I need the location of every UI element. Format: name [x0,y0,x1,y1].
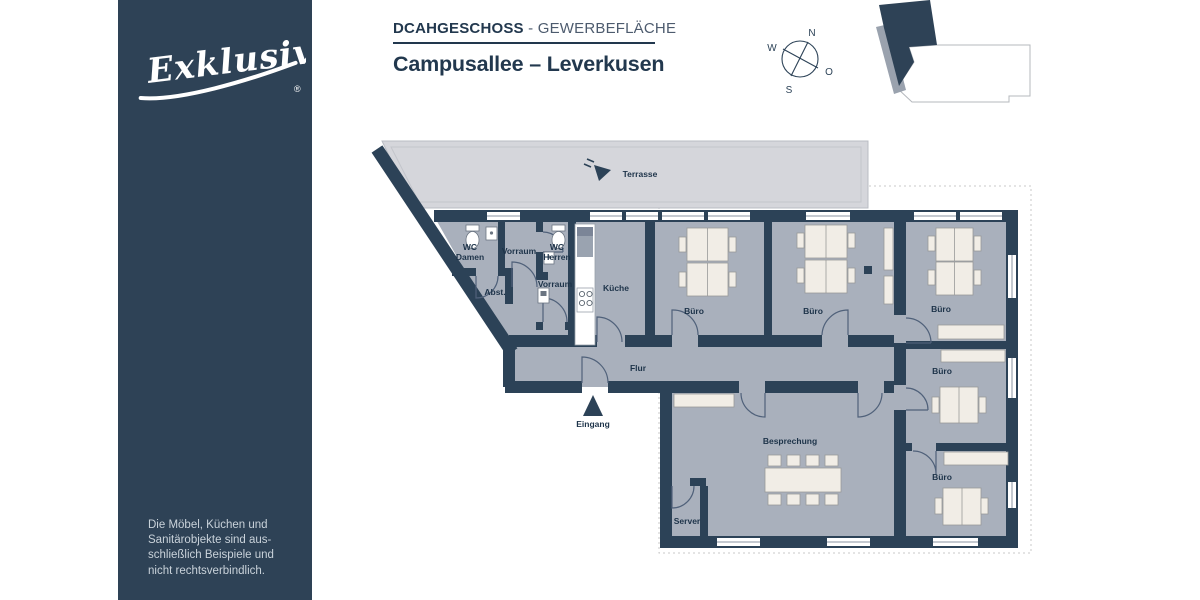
window [590,212,622,220]
sink-icon-damen [486,227,497,240]
terrace-label: Terrasse [623,169,658,179]
terrace: Terrasse [382,141,868,208]
kueche-label: Küche [603,283,629,293]
buero-2-label: Büro [803,306,823,316]
window [1008,482,1016,508]
window [717,538,760,546]
server-label: Server [674,516,701,526]
window [933,538,978,546]
window [662,212,704,220]
compass-ns-axis [791,42,808,76]
compass-east: O [825,67,833,78]
sideboard [674,394,734,407]
window [914,212,956,220]
vorraum-1-label: Vorraum [502,246,537,256]
compass-west: W [767,43,777,54]
buero-4-label: Büro [932,366,952,376]
wc-herren-label-2: Herren [543,252,570,262]
compass-rose: N W O S [767,28,833,96]
keyplan-thumbnail [876,0,1030,102]
buero-1-label: Büro [684,306,704,316]
sideboard [938,325,1004,339]
window [626,212,658,220]
buero-3-label: Büro [931,304,951,314]
abstellraum-label: Abst. [484,287,505,297]
flur-label: Flur [630,363,647,373]
entrance-arrow-icon [583,395,603,416]
sink-icon-vorraum [538,288,549,303]
keyplan-building-outline [897,45,1030,102]
sideboard [944,452,1008,465]
besprechung-label: Besprechung [763,436,817,446]
window [708,212,750,220]
entrance-marker: Eingang [576,395,610,429]
eingang-label: Eingang [576,419,610,429]
window [960,212,1002,220]
wc-damen-label-2: Damen [456,252,484,262]
wc-herren-label-1: WC [550,242,564,252]
stove-icon [577,288,593,312]
window [487,212,520,220]
window [1008,358,1016,398]
compass-we-axis [783,49,818,68]
window [806,212,850,220]
conference-table [765,468,841,492]
vorraum-2-label: Vorraum [538,279,573,289]
compass-south: S [786,85,793,96]
window [1008,255,1016,298]
sideboard [941,350,1005,362]
floorplan-canvas: N W O S Terrasse [0,0,1200,600]
wc-damen-label-1: WC [463,242,477,252]
kitchen-counter [575,224,595,345]
window [827,538,870,546]
buero-5-label: Büro [932,472,952,482]
compass-north: N [808,28,815,39]
